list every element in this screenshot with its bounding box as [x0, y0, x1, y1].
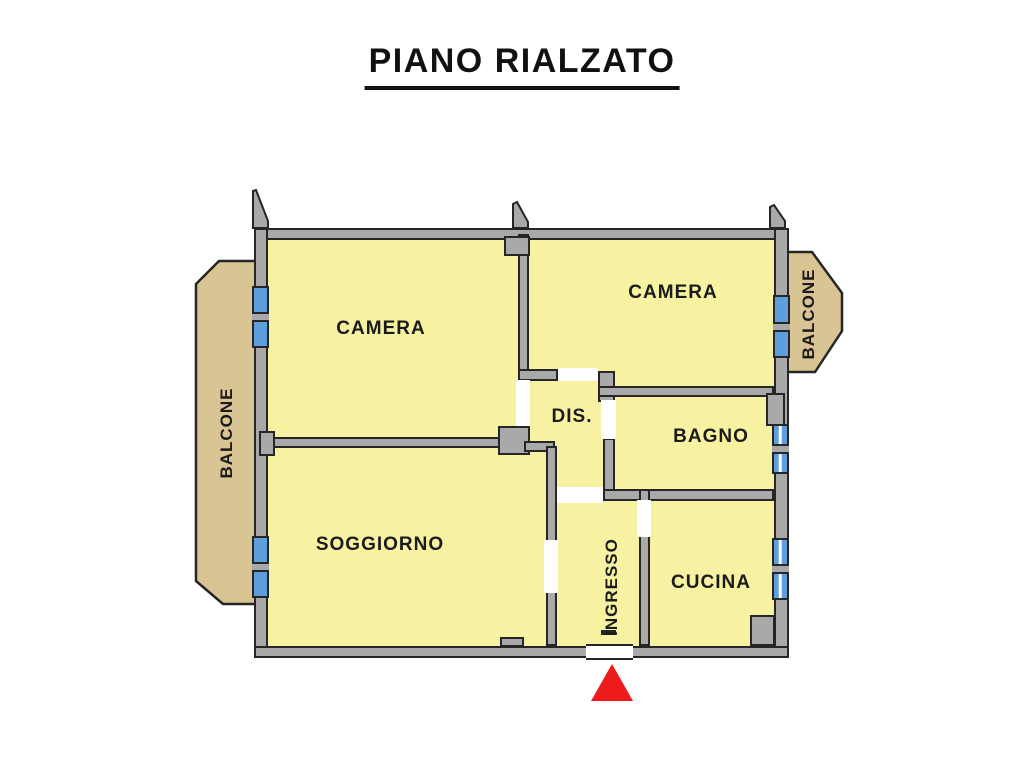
floor-plan-page: PIANO RIALZATO: [0, 0, 1024, 768]
entrance-door-opening: [586, 644, 633, 660]
wall-junction-left: [259, 431, 275, 456]
wall-dis-bagno: [603, 438, 615, 494]
door-camera-left: [516, 380, 530, 426]
wall-stub-top-middle: [513, 202, 528, 228]
entrance-arrow-icon: [591, 664, 633, 701]
window-cucina: [772, 538, 789, 600]
room-label-soggiorno: SOGGIORNO: [316, 534, 444, 556]
wall-cucina-corner-pier: [750, 615, 775, 646]
room-label-dis: DIS.: [552, 406, 593, 428]
door-cucina: [637, 500, 651, 537]
window-divider: [252, 312, 269, 322]
room-label-bagno: BAGNO: [673, 426, 749, 448]
window-bagno: [772, 424, 789, 474]
window-soggiorno: [252, 536, 269, 598]
wall-stub-top-right: [770, 205, 785, 228]
wall-bottom: [254, 646, 789, 658]
door-soggiorno: [544, 540, 558, 593]
window-divider: [252, 562, 269, 572]
room-label-ingresso: INGRESSO: [602, 538, 622, 636]
wall-camera-divider-top-pier: [504, 236, 530, 256]
window-camera-left: [252, 286, 269, 348]
balcony-label-left: BALCONE: [217, 387, 237, 478]
window-divider: [772, 444, 789, 454]
wall-junction-right: [766, 393, 785, 426]
window-camera-right: [773, 295, 790, 358]
wall-camera-bagno: [598, 386, 774, 397]
wall-bottom-pier: [500, 637, 524, 647]
room-label-cucina: CUCINA: [671, 572, 751, 594]
door-camera-right: [558, 368, 598, 381]
balcony-label-right: BALCONE: [799, 268, 819, 359]
room-label-camera-left: CAMERA: [336, 318, 425, 340]
wall-camera-soggiorno: [262, 437, 509, 448]
window-divider: [772, 564, 789, 574]
door-dis-ingresso: [557, 487, 603, 503]
wall-bagno-bottom: [603, 489, 774, 501]
room-label-camera-right: CAMERA: [628, 282, 717, 304]
window-divider: [773, 322, 790, 332]
wall-stub-top-left: [253, 190, 268, 228]
door-bagno: [601, 400, 616, 439]
